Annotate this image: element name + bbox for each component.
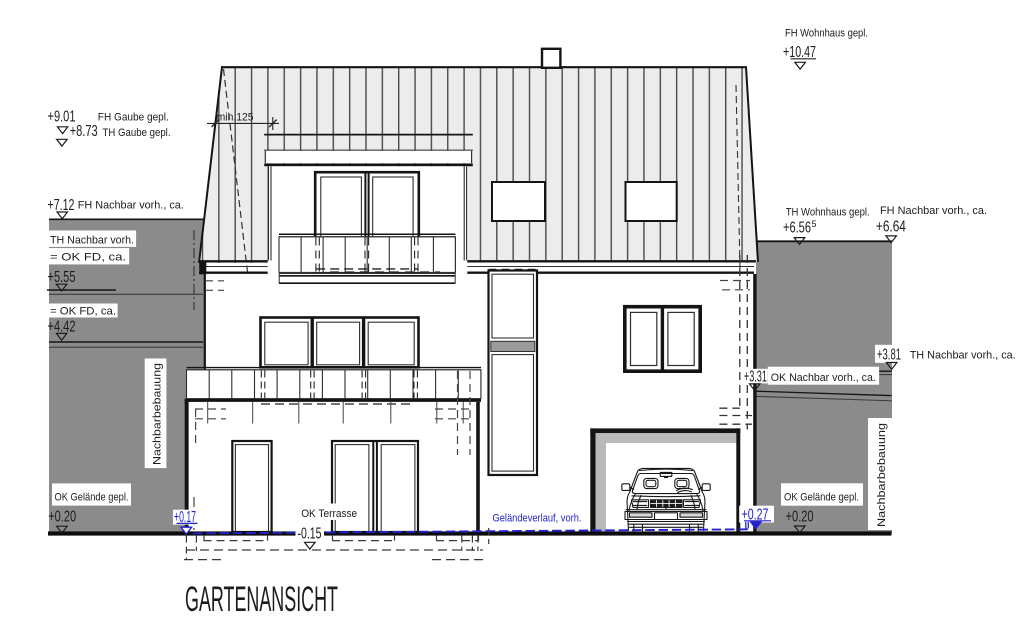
svg-text:+5.55: +5.55 bbox=[48, 269, 76, 286]
svg-text:+0.20: +0.20 bbox=[48, 509, 76, 526]
svg-text:OK Nachbar vorh., ca.: OK Nachbar vorh., ca. bbox=[771, 372, 876, 384]
svg-text:TH Nachbar vorh.: TH Nachbar vorh. bbox=[50, 234, 134, 246]
svg-text:Nachbarbebauung: Nachbarbebauung bbox=[876, 423, 888, 527]
svg-text:= OK FD, ca.: = OK FD, ca. bbox=[50, 252, 126, 264]
svg-text:FH Nachbar vorh., ca.: FH Nachbar vorh., ca. bbox=[880, 205, 987, 217]
svg-text:OK Gelände gepl.: OK Gelände gepl. bbox=[55, 491, 129, 503]
svg-text:OK Terrasse: OK Terrasse bbox=[301, 508, 357, 520]
svg-text:TH Nachbar vorh., ca.: TH Nachbar vorh., ca. bbox=[910, 349, 1016, 361]
svg-text:+4.42: +4.42 bbox=[48, 318, 76, 335]
svg-text:+6.56: +6.56 bbox=[783, 220, 811, 237]
svg-text:GARTENANSICHT: GARTENANSICHT bbox=[185, 580, 338, 619]
svg-text:-0.15: -0.15 bbox=[298, 526, 322, 543]
svg-text:OK Gelände gepl.: OK Gelände gepl. bbox=[784, 491, 859, 503]
svg-text:+6.64: +6.64 bbox=[876, 218, 906, 235]
svg-text:TH Gaube gepl.: TH Gaube gepl. bbox=[103, 127, 171, 139]
svg-text:+8.73: +8.73 bbox=[70, 123, 98, 140]
svg-text:+3.31: +3.31 bbox=[744, 369, 767, 386]
svg-text:FH Gaube gepl.: FH Gaube gepl. bbox=[98, 112, 169, 124]
svg-text:TH Wohnhaus gepl.: TH Wohnhaus gepl. bbox=[786, 207, 870, 219]
svg-text:FH Wohnhaus gepl.: FH Wohnhaus gepl. bbox=[785, 28, 868, 40]
svg-text:+3.81: +3.81 bbox=[877, 347, 901, 364]
svg-text:5: 5 bbox=[812, 219, 817, 229]
svg-text:min.125: min.125 bbox=[217, 112, 254, 124]
svg-text:FH Nachbar vorh., ca.: FH Nachbar vorh., ca. bbox=[78, 200, 184, 212]
svg-text:Geländeverlauf, vorh.: Geländeverlauf, vorh. bbox=[493, 512, 582, 524]
svg-text:Nachbarbebauung: Nachbarbebauung bbox=[152, 363, 164, 465]
svg-text:+7.12: +7.12 bbox=[48, 197, 75, 214]
svg-text:= OK FD, ca.: = OK FD, ca. bbox=[50, 306, 116, 318]
svg-text:+0.20: +0.20 bbox=[786, 509, 814, 526]
